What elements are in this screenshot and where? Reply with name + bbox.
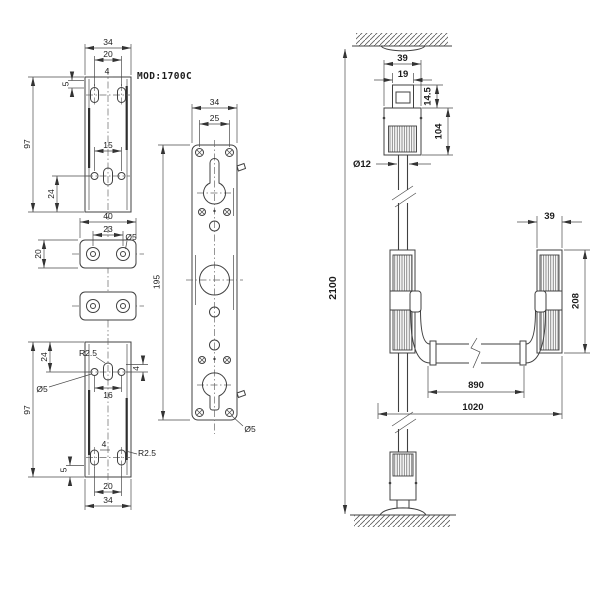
floor-strike [380,508,426,515]
model-label: MOD:1700C [137,71,192,82]
dim-assembly-case-width: 39 [544,211,555,222]
dim-bottom-plate-slot-width: 4 [102,439,107,449]
view-bottom-plate: 24 R2.5 Ø5 16 4 97 4 R2.5 5 20 34 [22,338,156,510]
dim-assembly-case-height: 208 [571,293,582,309]
dim-bottom-plate-slot-span: 20 [103,481,113,491]
dim-bottom-plate-height: 97 [22,405,32,415]
bottom-latch-foot [397,500,409,508]
ceiling-hatch [356,33,448,46]
dim-bottom-plate-side-offset: 4 [131,366,141,371]
dim-main-plate-hole-diameter: Ø5 [244,424,256,434]
dim-bottom-plate-width: 34 [103,495,113,505]
dim-main-plate-screw-span: 25 [210,113,220,123]
dim-bottom-plate-bottom-radius: R2.5 [138,448,156,458]
dim-cap-height: 20 [33,249,43,259]
dim-bottom-plate-hole-span: 16 [103,390,113,400]
push-bar [410,291,546,368]
dim-cap-hole-diameter: Ø5 [125,232,137,242]
dim-cap-width: 40 [103,211,113,221]
dim-bottom-plate-hole-diameter: Ø5 [36,384,48,394]
dim-assembly-overall-width: 1020 [462,402,483,413]
dim-bottom-plate-edge-offset: 5 [59,467,69,472]
floor-hatch [354,515,450,527]
dim-top-plate-hole-offset: 24 [46,189,56,199]
dim-assembly-latch-width: 19 [398,69,409,80]
dim-main-plate-width: 34 [210,97,220,107]
dim-assembly-total-height: 2100 [327,276,339,300]
dim-bottom-plate-top-radius: R2.5 [79,348,97,358]
dim-top-plate-edge-offset: 5 [61,81,71,86]
technical-drawing-page: 34 20 4 5 97 15 24 40 23 [0,0,600,600]
view-main-plate: MOD:1700C 34 25 [137,71,256,434]
dim-cap-hole-span: 23 [103,224,113,234]
bottom-case-ribs [393,454,413,476]
dim-bottom-plate-hole-offset: 24 [39,352,49,362]
dim-assembly-head-height: 104 [434,123,445,140]
view-assembly: 2100 39 19 14.5 104 Ø12 [327,33,590,527]
dim-top-plate-slot-span: 20 [103,49,113,59]
dim-assembly-head-width: 39 [397,53,408,64]
bar-break-symbol [471,338,480,368]
view-cap-plates: 40 23 Ø5 20 [33,211,144,336]
top-case-ribs [389,126,417,152]
dim-top-plate-slot-width: 4 [105,66,110,76]
dim-assembly-latch-offset: 14.5 [423,87,434,106]
dim-assembly-bar-length: 890 [468,380,484,391]
ceiling-strike [381,46,425,51]
view-top-plate: 34 20 4 5 97 15 24 [22,37,131,220]
panic-exit-device-drawing: 34 20 4 5 97 15 24 40 23 [0,0,600,600]
side-tab-lower [237,391,246,398]
dim-top-plate-width: 34 [103,37,113,47]
dim-top-plate-height: 97 [22,139,32,149]
dim-main-plate-height: 195 [152,275,162,289]
dim-top-plate-hole-span: 15 [103,140,113,150]
side-tab-upper [237,164,246,172]
dim-assembly-rod-diameter: Ø12 [353,159,371,170]
